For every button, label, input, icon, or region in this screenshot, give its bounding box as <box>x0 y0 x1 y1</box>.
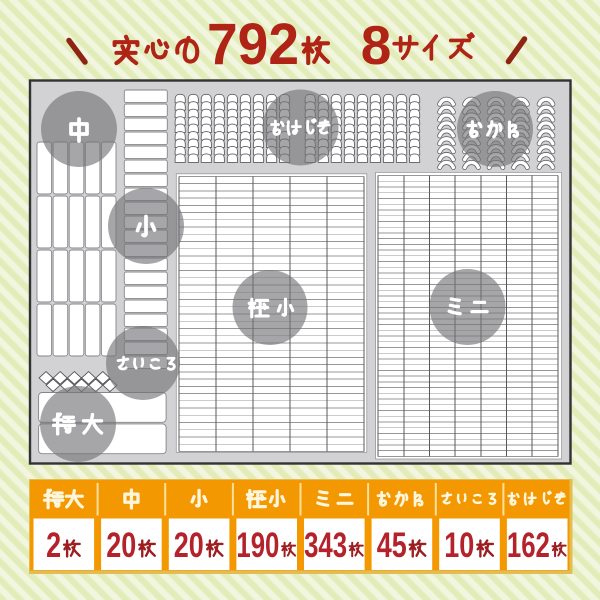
svg-text:2: 2 <box>46 526 61 565</box>
svg-text:20: 20 <box>106 526 136 565</box>
svg-text:10: 10 <box>444 526 474 565</box>
svg-text:162: 162 <box>507 526 550 565</box>
svg-text:20: 20 <box>174 526 204 565</box>
svg-text:190: 190 <box>236 526 279 565</box>
svg-text:343: 343 <box>304 526 347 565</box>
svg-text:8: 8 <box>361 14 392 76</box>
svg-text:792: 792 <box>207 12 299 77</box>
svg-text:45: 45 <box>377 526 407 565</box>
